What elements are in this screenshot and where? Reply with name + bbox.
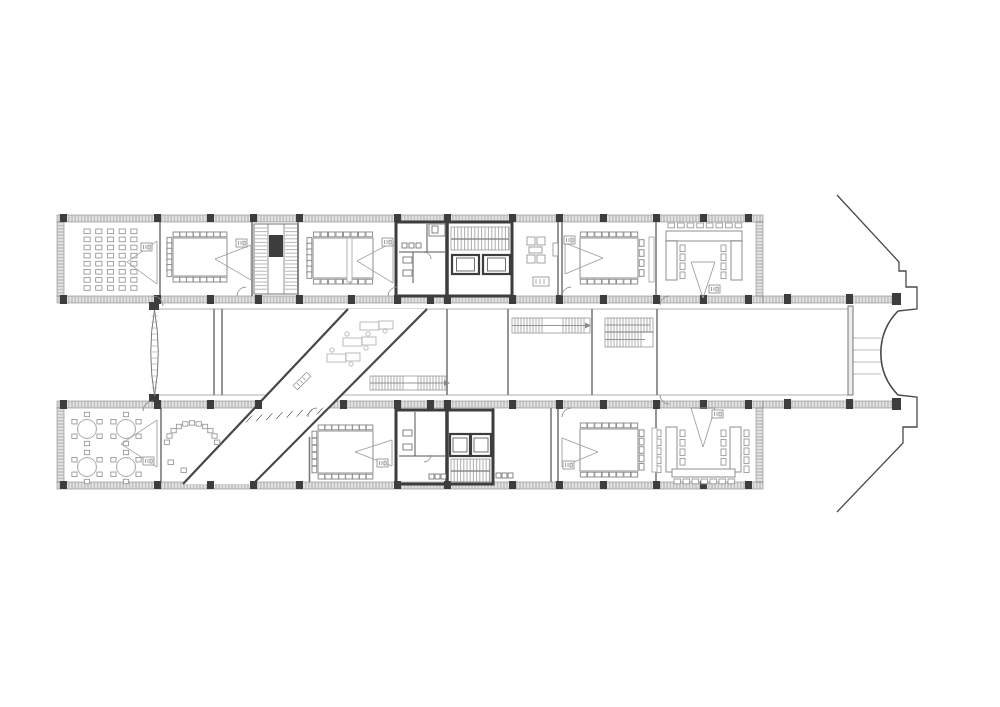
stairwell-box — [254, 224, 298, 294]
lecture-seating — [84, 229, 137, 290]
lounge-furniture — [527, 237, 558, 286]
stairwell-dividers — [268, 224, 284, 294]
facade-niche-arc — [881, 311, 898, 395]
stairwell-newel — [269, 235, 283, 257]
arc-seating — [164, 421, 219, 445]
elevator-shafts — [450, 255, 510, 456]
u-table-runs — [666, 231, 742, 477]
corridor-inner-lines — [158, 309, 848, 395]
wc-fixtures — [402, 243, 513, 479]
round-tables — [72, 412, 141, 483]
left-gable-lens — [151, 310, 159, 396]
floor-plan-page — [0, 0, 1000, 707]
entry-steps — [853, 338, 881, 374]
ramp-cutout — [183, 309, 427, 484]
floor-plan-drawing — [0, 0, 1000, 707]
elevator-cars — [453, 258, 506, 452]
end-wall — [848, 306, 853, 395]
atrium-stairs — [370, 318, 653, 390]
arc-seating-extra — [168, 460, 187, 473]
wc-closet — [429, 224, 445, 236]
